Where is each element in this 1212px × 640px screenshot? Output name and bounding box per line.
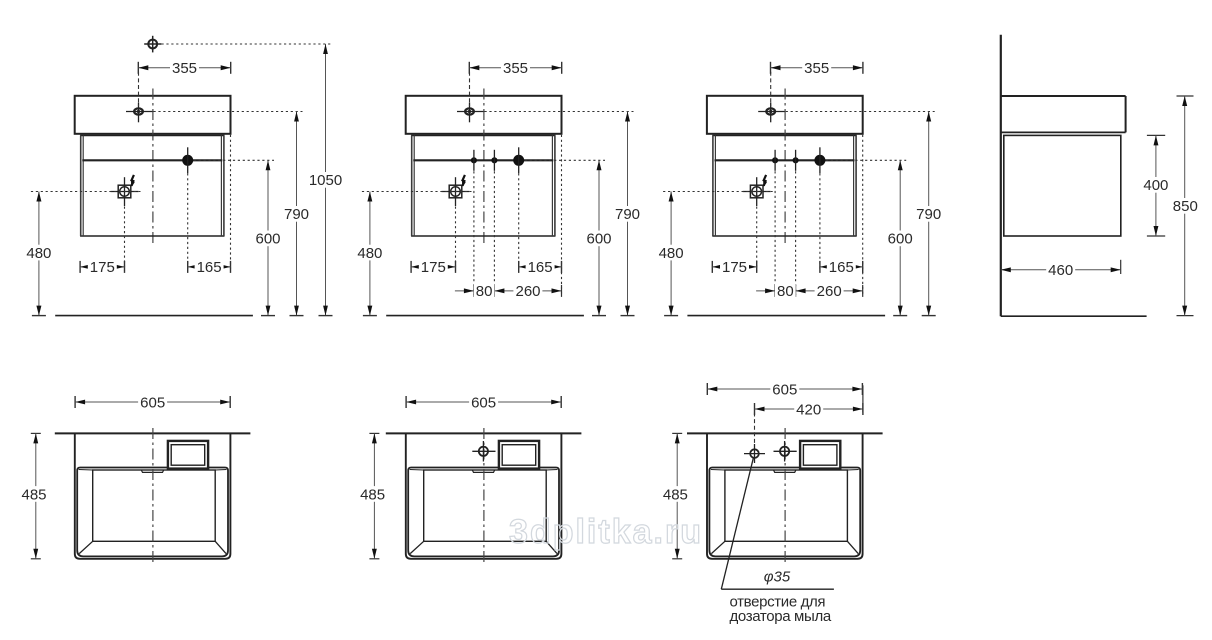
svg-text:355: 355 <box>503 60 528 77</box>
svg-text:3dplitka.ru: 3dplitka.ru <box>509 513 703 551</box>
svg-text:дозатора мыла: дозатора мыла <box>730 608 832 625</box>
svg-text:850: 850 <box>1173 198 1198 215</box>
svg-text:480: 480 <box>26 245 51 262</box>
svg-text:600: 600 <box>888 231 913 248</box>
svg-text:485: 485 <box>360 486 385 503</box>
svg-text:605: 605 <box>772 381 797 398</box>
svg-text:175: 175 <box>90 259 115 276</box>
svg-text:790: 790 <box>284 206 309 223</box>
svg-text:400: 400 <box>1143 177 1168 194</box>
svg-text:600: 600 <box>586 231 611 248</box>
svg-text:165: 165 <box>528 259 553 276</box>
svg-text:600: 600 <box>255 231 280 248</box>
svg-text:605: 605 <box>471 394 496 411</box>
svg-text:260: 260 <box>515 283 540 300</box>
svg-text:165: 165 <box>829 259 854 276</box>
svg-text:175: 175 <box>421 259 446 276</box>
svg-text:480: 480 <box>357 245 382 262</box>
svg-text:260: 260 <box>817 283 842 300</box>
svg-text:485: 485 <box>21 486 46 503</box>
svg-text:480: 480 <box>659 245 684 262</box>
svg-text:175: 175 <box>722 259 747 276</box>
svg-text:80: 80 <box>476 283 493 300</box>
svg-text:165: 165 <box>197 259 222 276</box>
svg-text:485: 485 <box>663 486 688 503</box>
svg-text:790: 790 <box>615 206 640 223</box>
svg-text:460: 460 <box>1048 262 1073 279</box>
svg-text:φ35: φ35 <box>764 568 791 585</box>
svg-text:1050: 1050 <box>309 172 342 189</box>
svg-text:790: 790 <box>916 206 941 223</box>
svg-text:355: 355 <box>804 60 829 77</box>
svg-text:605: 605 <box>140 394 165 411</box>
svg-text:420: 420 <box>796 401 821 418</box>
svg-text:80: 80 <box>777 283 794 300</box>
svg-text:355: 355 <box>172 60 197 77</box>
